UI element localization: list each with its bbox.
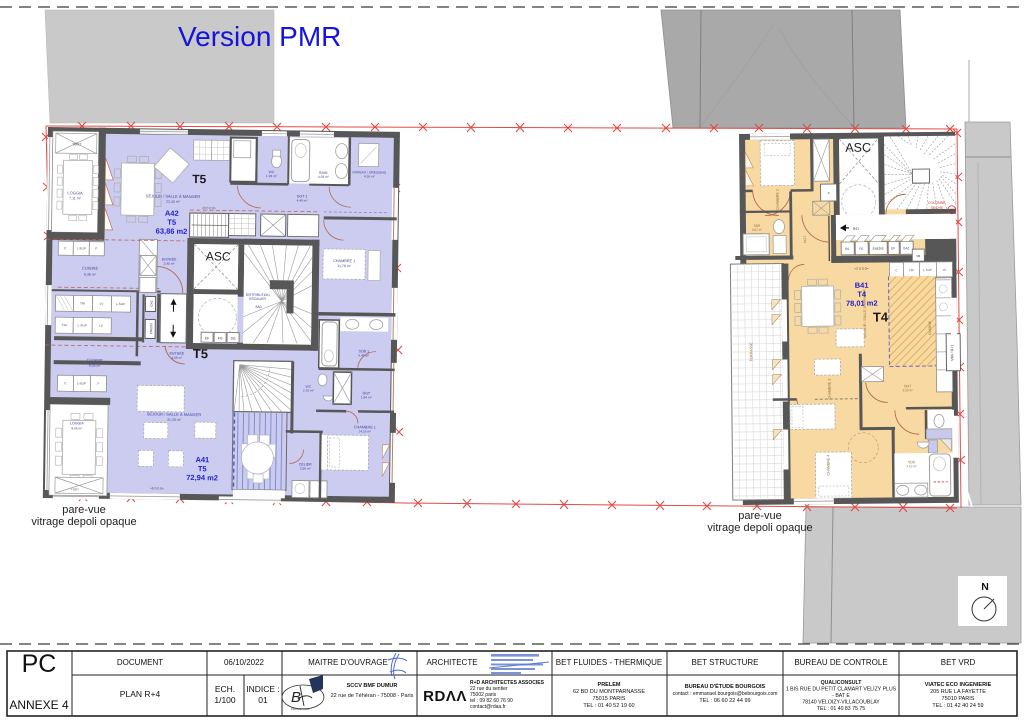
svg-text:ANNEXE 4: ANNEXE 4 (9, 698, 69, 712)
svg-text:pare-vue: pare-vue (738, 510, 781, 522)
svg-text:4,55 m²: 4,55 m² (364, 174, 375, 178)
svg-text:5,40 m²: 5,40 m² (358, 353, 369, 357)
svg-text:TRI: TRI (80, 301, 85, 305)
svg-text:L-SUP: L-SUP (116, 302, 125, 306)
svg-text:BET STRUCTURE: BET STRUCTURE (692, 658, 759, 667)
svg-text:B41: B41 (855, 281, 869, 290)
svg-text:FG: FG (859, 247, 864, 251)
svg-text:vitrage depoli opaque: vitrage depoli opaque (707, 522, 812, 534)
svg-text:22,40 m²: 22,40 m² (166, 200, 181, 204)
svg-text:1 BIS RUE DU PETIT CLAMART VEL: 1 BIS RUE DU PETIT CLAMART VELIZY PLUS (786, 687, 897, 693)
svg-text:205 RUE LA FAYETTE: 205 RUE LA FAYETTE (930, 689, 986, 695)
svg-text:T5: T5 (167, 218, 176, 227)
svg-text:TEL : 01 40 83 75 75: TEL : 01 40 83 75 75 (817, 706, 865, 712)
svg-text:GAZ: GAZ (903, 246, 909, 250)
svg-text:75010 PARIS: 75010 PARIS (942, 696, 975, 702)
svg-text:Version PMR: Version PMR (178, 21, 341, 52)
svg-text:8,36 m²: 8,36 m² (84, 273, 97, 277)
svg-text:SG: SG (845, 247, 850, 251)
svg-text:TERRASSE: TERRASSE (749, 342, 753, 362)
svg-text:ESCALIER: ESCALIER (249, 297, 266, 301)
svg-text:F: F (95, 247, 97, 251)
svg-text:2,90 m²: 2,90 m² (300, 467, 311, 471)
svg-text:CHAMBRE 1: CHAMBRE 1 (333, 259, 355, 263)
svg-text:2,70 m²: 2,70 m² (303, 389, 314, 393)
svg-text:VMI / R+1: VMI / R+1 (950, 345, 954, 361)
svg-text:T5: T5 (192, 172, 207, 186)
svg-text:9,35 m²: 9,35 m² (89, 364, 102, 368)
svg-text:TEL : 06 60 22 44 99: TEL : 06 60 22 44 99 (699, 698, 750, 704)
svg-text:A41: A41 (195, 455, 209, 464)
svg-text:ENEDIS: ENEDIS (149, 323, 153, 334)
svg-text:T4: T4 (857, 290, 867, 299)
svg-text:S: S (828, 191, 830, 195)
svg-text:SG: SG (231, 337, 236, 341)
svg-text:L-SUP: L-SUP (77, 246, 86, 250)
svg-text:ASC: ASC (206, 249, 231, 263)
svg-text:VIATEC ECO INGENIERIE: VIATEC ECO INGENIERIE (925, 682, 992, 688)
svg-text:62 BD DU MONTPARNASSE: 62 BD DU MONTPARNASSE (573, 689, 645, 695)
svg-text:DGT: DGT (803, 236, 807, 243)
svg-text:T4: T4 (873, 309, 889, 324)
svg-text:TBGT: TBGT (71, 487, 79, 491)
svg-text:78,01 m2: 78,01 m2 (846, 299, 878, 308)
svg-text:EF: EF (205, 336, 209, 340)
svg-text:GAZ: GAZ (150, 300, 154, 306)
svg-text:ECH.: ECH. (215, 684, 235, 694)
svg-text:≈8 0 0 0≈: ≈8 0 0 0≈ (150, 486, 164, 490)
svg-text:75015 PARIS: 75015 PARIS (593, 696, 626, 702)
svg-text:L-SUP: L-SUP (78, 323, 87, 327)
svg-text:3,97 m²: 3,97 m² (752, 228, 762, 232)
svg-text:SÈCHE: SÈCHE (931, 205, 944, 210)
svg-text:T5: T5 (193, 346, 208, 361)
svg-text:TEL : 01 40 52 19 60: TEL : 01 40 52 19 60 (583, 703, 634, 709)
svg-text:ENEDIS: ENEDIS (873, 246, 884, 250)
svg-text:INDICE :: INDICE : (246, 684, 280, 694)
svg-text:COLONNE: COLONNE (928, 201, 946, 205)
svg-text:CHAMBRE 3: CHAMBRE 3 (828, 379, 832, 400)
svg-text:A42: A42 (165, 209, 179, 218)
svg-text:22 rue de Téhéran - 75008 - Pa: 22 rue de Téhéran - 75008 - Paris (331, 693, 414, 699)
svg-text:3,20 m²: 3,20 m² (903, 388, 913, 392)
svg-text:PC: PC (22, 650, 57, 678)
svg-text:01: 01 (258, 695, 268, 705)
svg-text:FO: FO (218, 336, 223, 340)
svg-text:BUREAU D'ÉTUDE BOURGOIS: BUREAU D'ÉTUDE BOURGOIS (685, 682, 766, 690)
svg-text:11,76 m²: 11,76 m² (337, 264, 351, 268)
svg-text:4,10 m²: 4,10 m² (906, 464, 916, 468)
svg-text:SÉJOUR / SALLE À MANGER: SÉJOUR / SALLE À MANGER (146, 193, 201, 199)
svg-text:ARCHITECTE: ARCHITECTE (426, 658, 477, 667)
svg-text:LOGGIA: LOGGIA (67, 190, 83, 195)
svg-text:8A0: 8A0 (255, 305, 261, 309)
svg-text:BUREAU DE CONTROLE: BUREAU DE CONTROLE (794, 658, 887, 667)
svg-text:CHAMBRE 4: CHAMBRE 4 (826, 455, 830, 476)
svg-text:PRELEM: PRELEM (598, 682, 621, 688)
svg-text:4,46 m²: 4,46 m² (297, 198, 308, 202)
svg-text:T5: T5 (198, 464, 207, 473)
svg-text:TRI: TRI (62, 323, 67, 327)
svg-text:vitrage depoli opaque: vitrage depoli opaque (31, 516, 136, 528)
svg-text:EF: EF (891, 246, 895, 250)
svg-text:1,93 m²: 1,93 m² (266, 174, 277, 178)
svg-text:PLAN R+4: PLAN R+4 (120, 689, 161, 699)
svg-text:TBGT: TBGT (72, 142, 82, 146)
svg-text:- BAT E: - BAT E (832, 693, 850, 699)
svg-text:8,65 m²: 8,65 m² (71, 426, 82, 430)
svg-text:TRI: TRI (909, 268, 914, 272)
svg-text:1,84 m²: 1,84 m² (361, 395, 372, 399)
svg-text:31,30 m²: 31,30 m² (167, 418, 182, 422)
svg-text:N: N (981, 581, 989, 593)
svg-text:L-SUP: L-SUP (923, 268, 932, 272)
svg-text:CHAMBRE 2: CHAMBRE 2 (776, 189, 780, 210)
svg-text:1/100: 1/100 (214, 695, 236, 705)
svg-text:78140 VELOIZY-VILLACOUBLAY: 78140 VELOIZY-VILLACOUBLAY (802, 700, 880, 706)
svg-text:LOGGIA: LOGGIA (70, 421, 84, 425)
svg-text:3,46 m²: 3,46 m² (164, 262, 175, 266)
svg-text:DOCUMENT: DOCUMENT (117, 658, 163, 667)
svg-text:contact : emmanuel.bourgois@be: contact : emmanuel.bourgois@bebourgois.c… (673, 691, 778, 697)
svg-text:LV: LV (943, 268, 946, 272)
svg-text:ASC: ASC (845, 141, 871, 155)
svg-text:BET FLUIDES - THERMIQUE: BET FLUIDES - THERMIQUE (556, 658, 662, 667)
svg-text:4,08 m²: 4,08 m² (171, 356, 182, 360)
svg-text:pare-vue: pare-vue (62, 504, 105, 516)
svg-text:L-SUP: L-SUP (77, 381, 86, 385)
svg-text:BET VRD: BET VRD (941, 658, 976, 667)
svg-text:63,86 m2: 63,86 m2 (156, 227, 188, 236)
svg-text:SÉJOUR / SALLE À MANGER: SÉJOUR / SALLE À MANGER (147, 411, 202, 417)
svg-text:72,94 m2: 72,94 m2 (186, 473, 218, 482)
svg-text:VB: VB (916, 254, 920, 258)
svg-text:≈0 0 0 0≈: ≈0 0 0 0≈ (202, 206, 216, 210)
svg-text:CUISINE: CUISINE (928, 320, 932, 335)
svg-text:7,11 m²: 7,11 m² (69, 196, 81, 200)
svg-text:4,93 m²: 4,93 m² (318, 175, 329, 179)
svg-text:SCCV BMF DUMUR: SCCV BMF DUMUR (347, 683, 398, 689)
svg-text:≈2 0 0 0≈: ≈2 0 0 0≈ (854, 267, 868, 271)
svg-text:QUALICONSULT: QUALICONSULT (821, 680, 863, 686)
svg-text:B41: B41 (853, 227, 859, 231)
svg-text:MAITRE D'OUVRAGE: MAITRE D'OUVRAGE (308, 658, 388, 667)
svg-text:CUISINE: CUISINE (82, 265, 99, 270)
svg-text:RDΛΛ: RDΛΛ (423, 688, 467, 705)
svg-text:14,16 m²: 14,16 m² (358, 429, 371, 433)
svg-text:contact@rdaa.fr: contact@rdaa.fr (470, 704, 506, 710)
svg-text:CUISINE: CUISINE (87, 358, 104, 363)
svg-text:PROMOTION: PROMOTION (291, 707, 310, 711)
svg-text:F: F (97, 382, 99, 386)
svg-text:06/10/2022: 06/10/2022 (224, 658, 265, 667)
svg-text:TEL : 01 42 40 24 59: TEL : 01 42 40 24 59 (932, 703, 983, 709)
